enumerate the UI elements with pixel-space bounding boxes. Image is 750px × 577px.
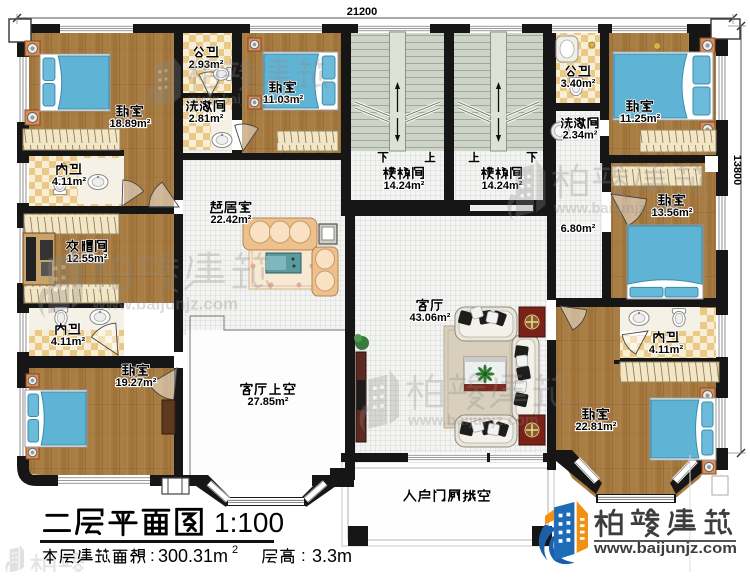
svg-text:14.24m²: 14.24m² — [384, 180, 425, 192]
svg-text:2.34m²: 2.34m² — [563, 130, 598, 142]
svg-text:www.baijunjz.com: www.baijunjz.com — [593, 541, 737, 557]
svg-text:6.80m²: 6.80m² — [561, 223, 596, 235]
svg-text:www.baijunjz.com: www.baijunjz.com — [188, 92, 302, 107]
svg-text:18.89m²: 18.89m² — [110, 118, 151, 130]
svg-text:www.baijunjz.com: www.baijunjz.com — [553, 201, 680, 217]
svg-text:11.25m²: 11.25m² — [620, 113, 661, 125]
svg-text:4.11m²: 4.11m² — [52, 176, 87, 188]
svg-text::: : — [301, 546, 306, 565]
svg-text:www.baijunjz.com: www.baijunjz.com — [92, 294, 239, 313]
svg-text:27.85m²: 27.85m² — [248, 396, 289, 408]
svg-text:22.81m²: 22.81m² — [576, 421, 617, 433]
svg-text:19.27m²: 19.27m² — [116, 377, 157, 389]
svg-text:1:100: 1:100 — [214, 507, 284, 538]
svg-text:43.06m²: 43.06m² — [410, 312, 451, 324]
svg-text::: : — [150, 546, 155, 565]
svg-text:300.31m: 300.31m — [158, 546, 228, 566]
svg-text:www.baijunjz.com: www.baijunjz.com — [407, 412, 538, 429]
svg-text:4.11m²: 4.11m² — [649, 344, 684, 356]
svg-text:21200: 21200 — [347, 6, 378, 18]
svg-text:4.11m²: 4.11m² — [51, 336, 86, 348]
svg-text:2: 2 — [232, 544, 238, 556]
svg-text:3.40m²: 3.40m² — [561, 78, 596, 90]
svg-text:13800: 13800 — [731, 155, 743, 186]
svg-text:2.81m²: 2.81m² — [189, 113, 224, 125]
svg-text:3.3m: 3.3m — [312, 546, 352, 566]
svg-text:22.42m²: 22.42m² — [211, 214, 252, 226]
